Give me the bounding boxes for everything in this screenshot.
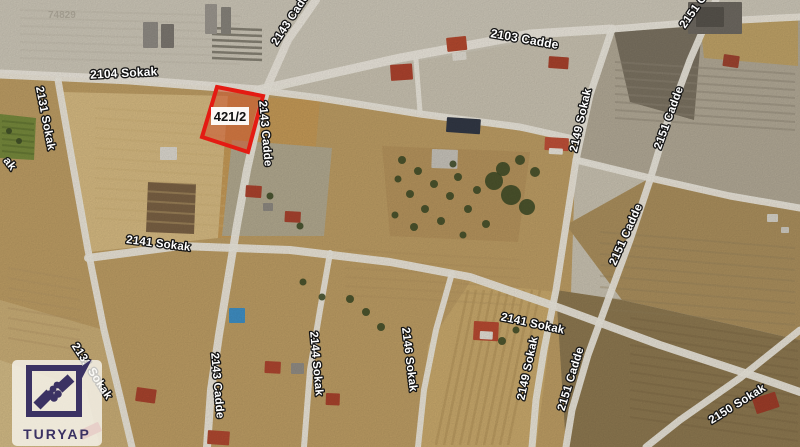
parcel-label: 421/2 <box>214 109 247 124</box>
watermark-number: 74829 <box>48 10 76 21</box>
turyap-logo: TURYAP <box>12 359 102 446</box>
map-canvas: 421/2 2104 Sokak2103 Cadde2143 Cadde2131… <box>0 0 800 447</box>
turyap-logo-text: TURYAP <box>23 426 91 442</box>
satellite-map: 421/2 2104 Sokak2103 Cadde2143 Cadde2131… <box>0 0 800 447</box>
